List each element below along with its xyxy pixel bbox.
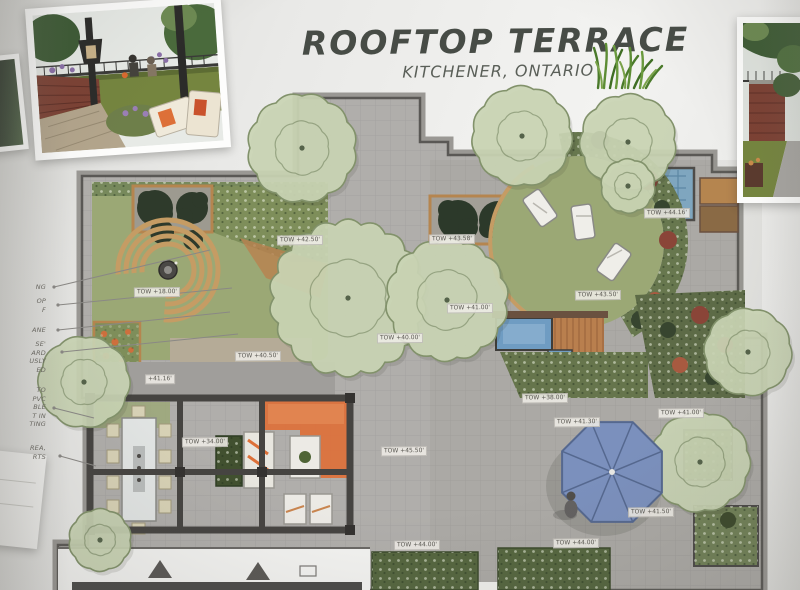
rendering-image	[743, 23, 800, 197]
fire-pit-center	[164, 266, 172, 274]
water-highlight	[503, 324, 545, 344]
title-block: ROOFTOP TERRACE KITCHENER, ONTARIO	[302, 20, 633, 82]
perspective-rendering-main	[25, 0, 231, 161]
deciduous-tree-canopy	[248, 94, 359, 206]
photographed-presentation-board: { "title": { "main": "ROOFTOP TERRACE", …	[0, 0, 800, 590]
rug-inner	[268, 404, 344, 424]
threshold-band	[72, 582, 362, 590]
grass-clump-icon	[588, 36, 664, 90]
spa-planting-texture	[500, 352, 648, 398]
perspective-rendering-side	[737, 17, 800, 203]
sparkle	[175, 262, 178, 265]
shrub	[773, 73, 800, 97]
deck-planks	[552, 318, 604, 352]
table-plant	[299, 451, 311, 463]
umbrella-finial	[609, 469, 615, 475]
rendering-image	[32, 3, 223, 153]
page-subtitle: KITCHENER, ONTARIO	[302, 61, 594, 83]
pergola-planter-texture	[216, 436, 242, 486]
page-title: ROOFTOP TERRACE	[302, 20, 632, 62]
planter	[745, 163, 763, 187]
